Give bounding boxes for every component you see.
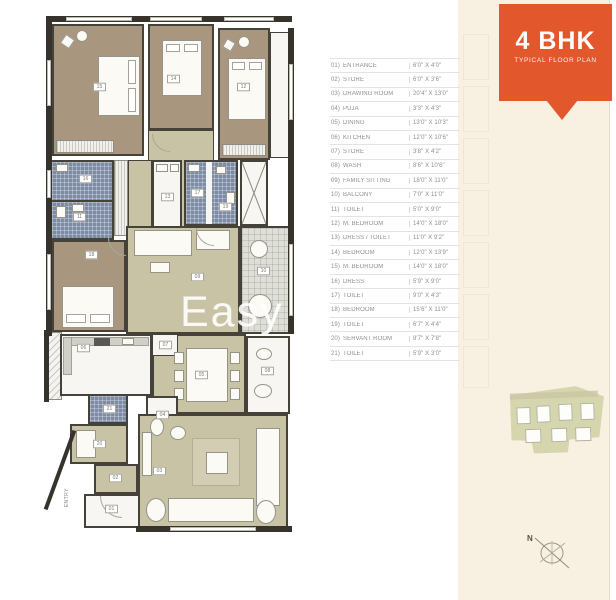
legend-row: 16)DRESS5'9" X 9'0" — [330, 275, 460, 289]
legend-room-name: BEDROOM — [343, 307, 409, 313]
pillow-icon — [90, 314, 110, 323]
room-number-label: 19 — [219, 203, 232, 212]
kitchen-counter — [63, 337, 72, 375]
basin-icon — [156, 164, 168, 172]
legend-row-number: 02) — [330, 77, 343, 83]
legend-room-name: TOILET — [343, 322, 409, 328]
legend-row-number: 19) — [330, 322, 343, 328]
basin-icon — [256, 348, 272, 360]
window — [47, 60, 51, 106]
legend-room-size: 5'9" X 9'0" — [409, 279, 460, 285]
tv-unit-icon — [142, 432, 152, 476]
room-number-label: 21 — [103, 405, 116, 414]
room-number-label: 16 — [79, 175, 92, 184]
legend-row: 13)DRESS / TOILET11'0" X 9'2" — [330, 232, 460, 246]
pillow-icon — [128, 60, 136, 84]
legend-room-size: 15'6" X 11'0" — [409, 307, 460, 313]
room-number-label: 03 — [153, 467, 166, 476]
tag-pointer — [546, 100, 578, 120]
legend-table: 01)ENTRANCE6'0" X 4'0"02)STORE6'0" X 3'6… — [330, 58, 460, 361]
legend-room-name: TOILET — [343, 351, 409, 357]
building-block — [551, 428, 567, 443]
north-compass: N — [527, 532, 573, 574]
legend-room-name: PUJA — [343, 106, 409, 112]
legend-row-number: 07) — [330, 149, 343, 155]
legend-room-size: 14'0" X 18'0" — [409, 221, 460, 227]
legend-room-size: 3'8" X 4'2" — [409, 149, 460, 155]
compass-icon — [527, 532, 573, 574]
legend-room-name: SERVANT ROOM — [343, 336, 409, 342]
building-block — [516, 407, 531, 424]
legend-room-size: 6'0" X 4'0" — [409, 63, 460, 69]
legend-row-number: 08) — [330, 163, 343, 169]
pillow-icon — [184, 44, 198, 52]
legend-row-number: 20) — [330, 336, 343, 342]
round-table-icon — [250, 240, 268, 258]
chair-icon — [230, 352, 240, 364]
cushion-icon — [238, 36, 250, 48]
legend-room-size: 12'0" X 13'9" — [409, 250, 460, 256]
sofa-icon — [168, 498, 254, 522]
legend-row-number: 15) — [330, 264, 343, 270]
basin-icon — [254, 384, 272, 398]
legend-row: 05)DINING13'0" X 10'3" — [330, 117, 460, 131]
wardrobe-hatch — [56, 140, 114, 153]
legend-row: 17)TOILET9'0" X 4'3" — [330, 289, 460, 303]
legend-row-number: 17) — [330, 293, 343, 299]
window — [150, 17, 202, 21]
window — [47, 170, 51, 198]
legend-row-number: 01) — [330, 63, 343, 69]
legend-room-name: FAMILY SITTING — [343, 178, 409, 184]
building-block — [525, 429, 541, 444]
building-block — [575, 427, 591, 442]
planter-icon — [150, 418, 164, 436]
room-number-label: 06 — [77, 344, 90, 353]
legend-row-number: 05) — [330, 120, 343, 126]
room-number-label: 10 — [257, 267, 270, 276]
brochure-page: 4 BHK TYPICAL FLOOR PLAN 01)ENTRANCE6'0"… — [0, 0, 616, 600]
pillow-icon — [128, 88, 136, 112]
chair-icon — [174, 352, 184, 364]
legend-room-size: 14'0" X 18'0" — [409, 264, 460, 270]
legend-room-name: STORE — [343, 149, 409, 155]
wc-icon — [56, 206, 66, 218]
basin-icon — [56, 164, 68, 172]
legend-row: 15)M. BEDROOM14'0" X 18'0" — [330, 260, 460, 274]
room-number-label: 05 — [195, 371, 208, 380]
room-number-label: 18 — [85, 251, 98, 260]
legend-row: 01)ENTRANCE6'0" X 4'0" — [330, 59, 460, 73]
legend-room-name: TOILET — [343, 293, 409, 299]
window — [224, 17, 274, 21]
table-icon — [150, 262, 170, 273]
legend-row: 12)M. BEDROOM14'0" X 18'0" — [330, 217, 460, 231]
legend-row-number: 10) — [330, 192, 343, 198]
building-block — [558, 403, 573, 420]
north-label: N — [527, 534, 533, 543]
legend-room-size: 7'0" X 11'0" — [409, 192, 460, 198]
legend-room-size: 6'7" X 4'4" — [409, 322, 460, 328]
room-number-label: 04 — [156, 411, 169, 420]
legend-row: 07)STORE3'8" X 4'2" — [330, 145, 460, 159]
legend-row: 20)SERVANT ROOM8'7" X 7'8" — [330, 332, 460, 346]
window — [289, 244, 293, 316]
basin-icon — [72, 204, 84, 212]
legend-row-number: 12) — [330, 221, 343, 227]
ghost-box — [463, 34, 489, 80]
sofa-icon — [134, 230, 192, 256]
ghost-box — [463, 294, 489, 340]
legend-room-size: 12'0" X 10'6" — [409, 135, 460, 141]
pillow-icon — [66, 314, 86, 323]
side-table-icon — [146, 498, 166, 522]
window — [289, 64, 293, 120]
room-number-label: 20 — [93, 440, 106, 449]
legend-room-size: 5'9" X 3'0" — [409, 351, 460, 357]
room-number-label: 08 — [261, 367, 274, 376]
ghost-box — [463, 86, 489, 132]
basin-icon — [216, 166, 226, 174]
window — [47, 254, 51, 310]
legend-row: 02)STORE6'0" X 3'6" — [330, 73, 460, 87]
legend-row-number: 03) — [330, 91, 343, 97]
site-key-plan — [501, 374, 614, 480]
chair-icon — [174, 370, 184, 382]
window — [66, 17, 132, 21]
legend-room-name: BEDROOM — [343, 250, 409, 256]
corridor — [128, 160, 152, 228]
ghost-box — [463, 346, 489, 388]
ghost-box — [463, 242, 489, 288]
legend-row: 11)TOILET5'0" X 9'0" — [330, 203, 460, 217]
pillow-icon — [166, 44, 180, 52]
ghost-box — [463, 190, 489, 236]
legend-row-number: 09) — [330, 178, 343, 184]
wardrobe-hatch — [222, 144, 266, 156]
legend-row: 06)KITCHEN12'0" X 10'6" — [330, 131, 460, 145]
legend-row-number: 16) — [330, 279, 343, 285]
legend-room-name: STORE — [343, 77, 409, 83]
legend-room-name: ENTRANCE — [343, 63, 409, 69]
toilet-divider — [206, 162, 212, 224]
legend-room-name: DRESS — [343, 279, 409, 285]
legend-room-size: 18'0" X 11'0" — [409, 178, 460, 184]
legend-row: 21)TOILET5'9" X 3'0" — [330, 347, 460, 361]
legend-room-size: 9'0" X 4'3" — [409, 293, 460, 299]
legend-room-name: M. BEDROOM — [343, 221, 409, 227]
legend-room-name: BALCONY — [343, 192, 409, 198]
pillow-icon — [232, 62, 245, 70]
side-table-icon — [256, 500, 276, 524]
legend-row-number: 06) — [330, 135, 343, 141]
legend-room-size: 8'6" X 10'6" — [409, 163, 460, 169]
legend-row: 10)BALCONY7'0" X 11'0" — [330, 189, 460, 203]
pillow-icon — [249, 62, 262, 70]
legend-row: 09)FAMILY SITTING18'0" X 11'0" — [330, 174, 460, 188]
legend-row-number: 18) — [330, 307, 343, 313]
room-number-label: 07 — [159, 341, 172, 350]
sofa-icon — [256, 428, 280, 506]
legend-room-name: DRESS / TOILET — [343, 235, 409, 241]
room-number-label: 02 — [109, 474, 122, 483]
building-block — [536, 405, 551, 422]
legend-row: 19)TOILET6'7" X 4'4" — [330, 318, 460, 332]
legend-room-size: 20'4" X 13'0" — [409, 91, 460, 97]
building-block — [580, 403, 595, 420]
wall-diagonal — [44, 430, 76, 510]
legend-room-size: 13'0" X 10'3" — [409, 120, 460, 126]
chair-icon — [230, 388, 240, 400]
wardrobe-hatch — [114, 160, 128, 236]
window — [170, 527, 256, 531]
room-number-label: 15 — [93, 83, 106, 92]
room-number-label: 14 — [167, 75, 180, 84]
legend-row: 14)BEDROOM12'0" X 13'9" — [330, 246, 460, 260]
legend-room-size: 11'0" X 9'2" — [409, 235, 460, 241]
shaft — [240, 160, 268, 226]
legend-row: 08)WASH8'6" X 10'6" — [330, 160, 460, 174]
legend-row-number: 21) — [330, 351, 343, 357]
legend-row-number: 13) — [330, 235, 343, 241]
legend-room-size: 8'7" X 7'8" — [409, 336, 460, 342]
legend-room-name: WASH — [343, 163, 409, 169]
chair-icon — [230, 370, 240, 382]
wardrobe-strip — [270, 32, 290, 158]
legend-room-size: 3'3" X 4'3" — [409, 106, 460, 112]
room-number-label: 11 — [73, 213, 86, 222]
basin-icon — [188, 164, 200, 172]
table-icon — [206, 452, 228, 474]
legend-row-number: 04) — [330, 106, 343, 112]
legend-room-name: M. BEDROOM — [343, 264, 409, 270]
legend-room-name: KITCHEN — [343, 135, 409, 141]
room-number-label: 13 — [161, 193, 174, 202]
cushion-icon — [76, 30, 88, 42]
legend-row-number: 14) — [330, 250, 343, 256]
sink-icon — [122, 338, 134, 345]
stove-icon — [94, 338, 110, 346]
legend-row-number: 11) — [330, 207, 343, 213]
room-number-label: 17 — [191, 189, 204, 198]
plan-title: 4 BHK — [499, 28, 612, 54]
legend-row: 03)DRAWING ROOM20'4" X 13'0" — [330, 88, 460, 102]
legend-room-name: DRAWING ROOM — [343, 91, 409, 97]
shaft-x-icon — [242, 162, 266, 224]
legend-room-size: 6'0" X 3'6" — [409, 77, 460, 83]
room-number-label: 09 — [191, 273, 204, 282]
ghost-box — [463, 138, 489, 184]
watermark: Easy — [180, 288, 284, 337]
wall — [44, 330, 49, 402]
entry-label: ENTRY — [64, 488, 70, 507]
legend-room-size: 5'0" X 9'0" — [409, 207, 460, 213]
legend-room-name: TOILET — [343, 207, 409, 213]
legend-row: 04)PUJA3'3" X 4'3" — [330, 102, 460, 116]
legend-room-name: DINING — [343, 120, 409, 126]
legend-row: 18)BEDROOM15'6" X 11'0" — [330, 304, 460, 318]
room-number-label: 01 — [105, 505, 118, 514]
basin-icon — [170, 164, 179, 172]
plan-subtitle: TYPICAL FLOOR PLAN — [499, 57, 612, 64]
plan-title-tag: 4 BHK TYPICAL FLOOR PLAN — [499, 4, 612, 101]
planter-icon — [170, 426, 186, 440]
room-number-label: 12 — [237, 83, 250, 92]
